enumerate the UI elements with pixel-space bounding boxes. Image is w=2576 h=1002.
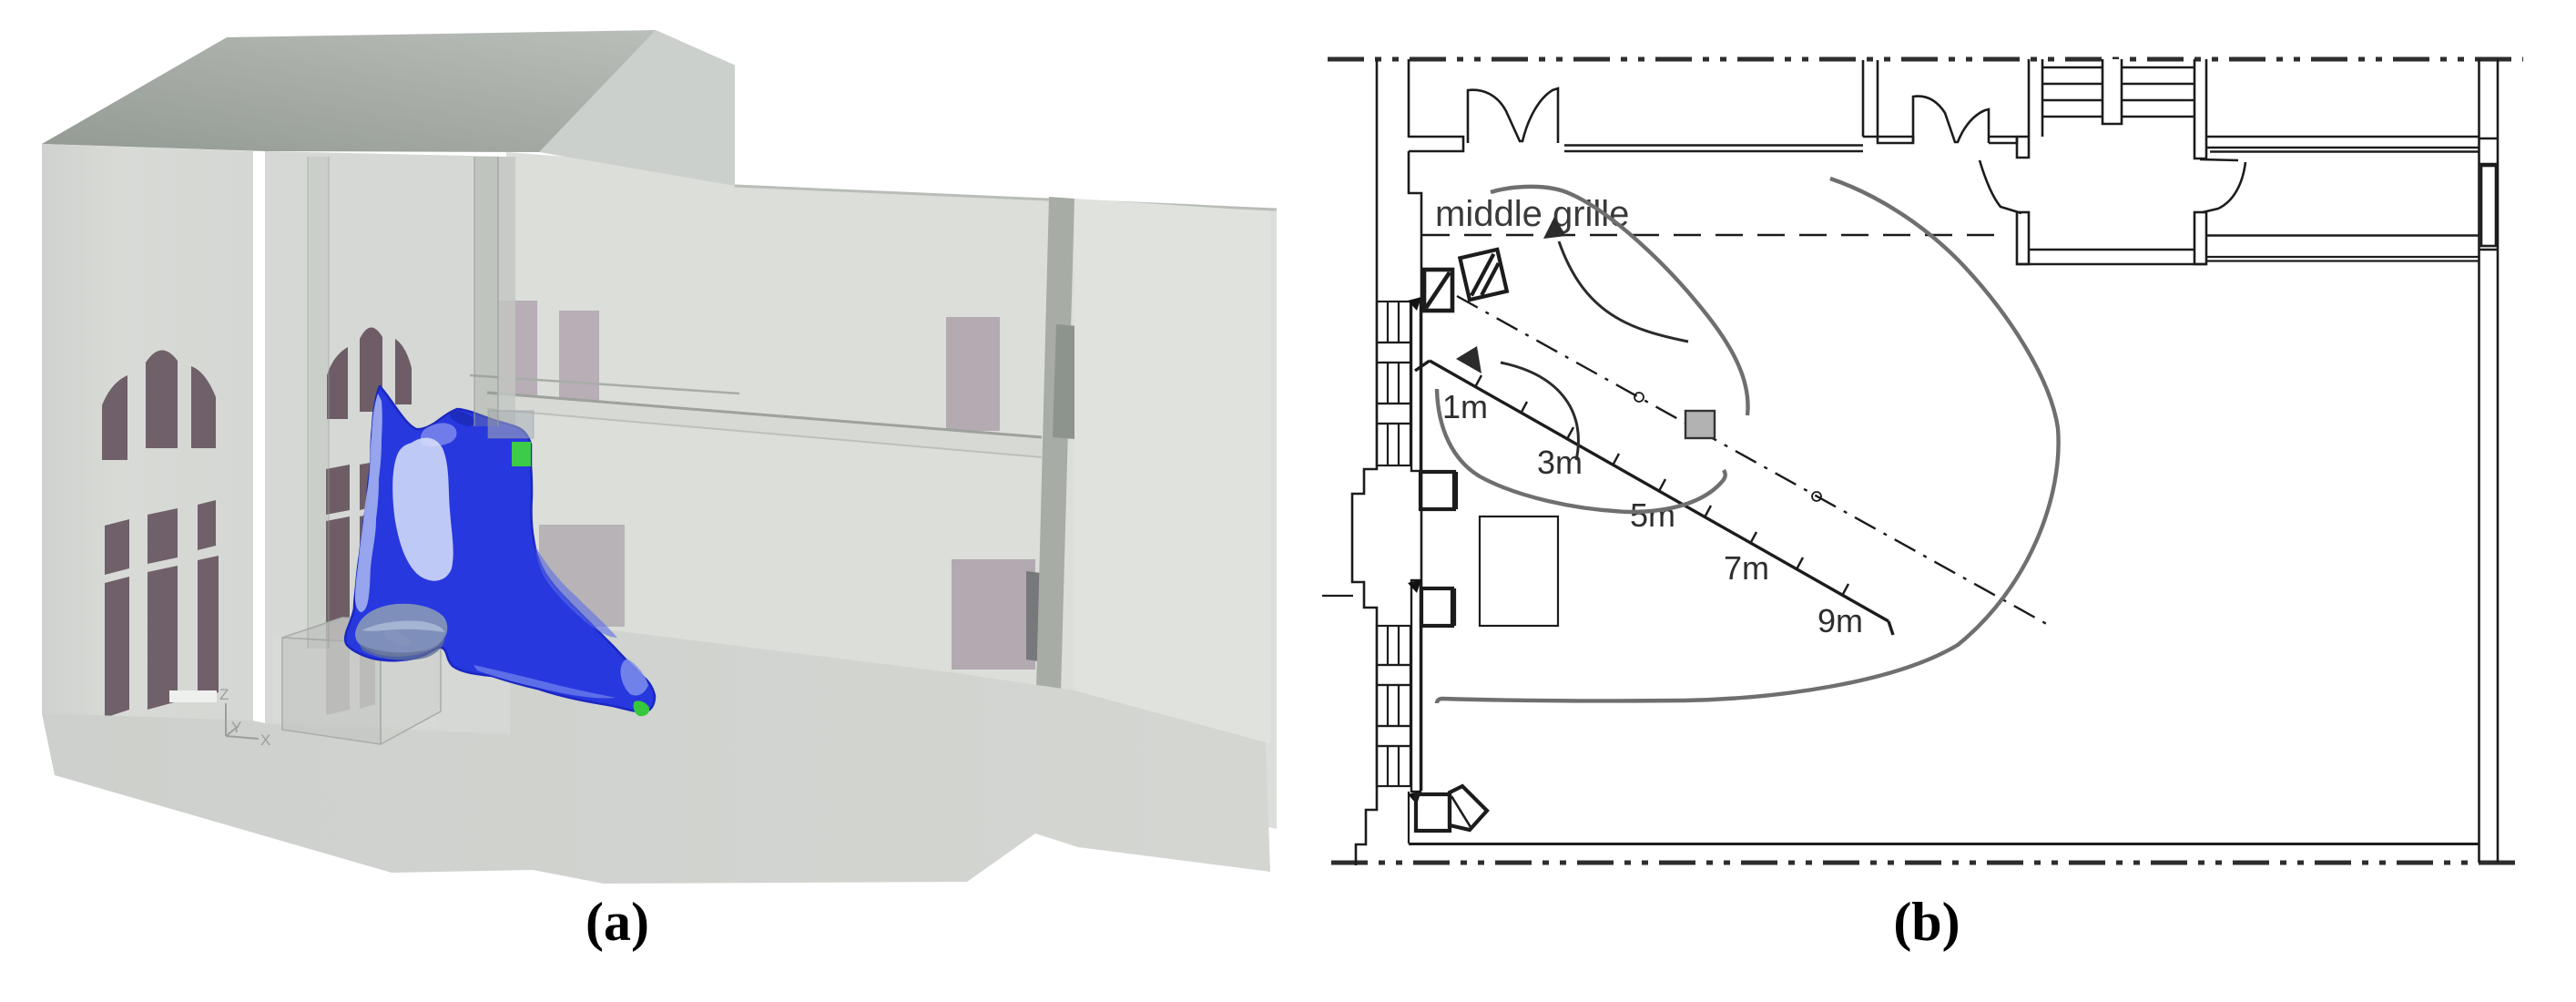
svg-text:Y: Y	[231, 719, 241, 736]
svg-text:Z: Z	[219, 686, 229, 703]
svg-text:(b): (b)	[1893, 892, 1960, 952]
svg-text:X: X	[260, 731, 270, 749]
svg-text:1m: 1m	[1442, 388, 1488, 425]
svg-text:5m: 5m	[1630, 496, 1675, 534]
svg-text:middle grille: middle grille	[1435, 194, 1629, 234]
svg-text:(a): (a)	[585, 892, 649, 952]
svg-text:3m: 3m	[1537, 444, 1583, 481]
svg-text:9m: 9m	[1817, 602, 1863, 639]
svg-text:7m: 7m	[1724, 549, 1769, 587]
